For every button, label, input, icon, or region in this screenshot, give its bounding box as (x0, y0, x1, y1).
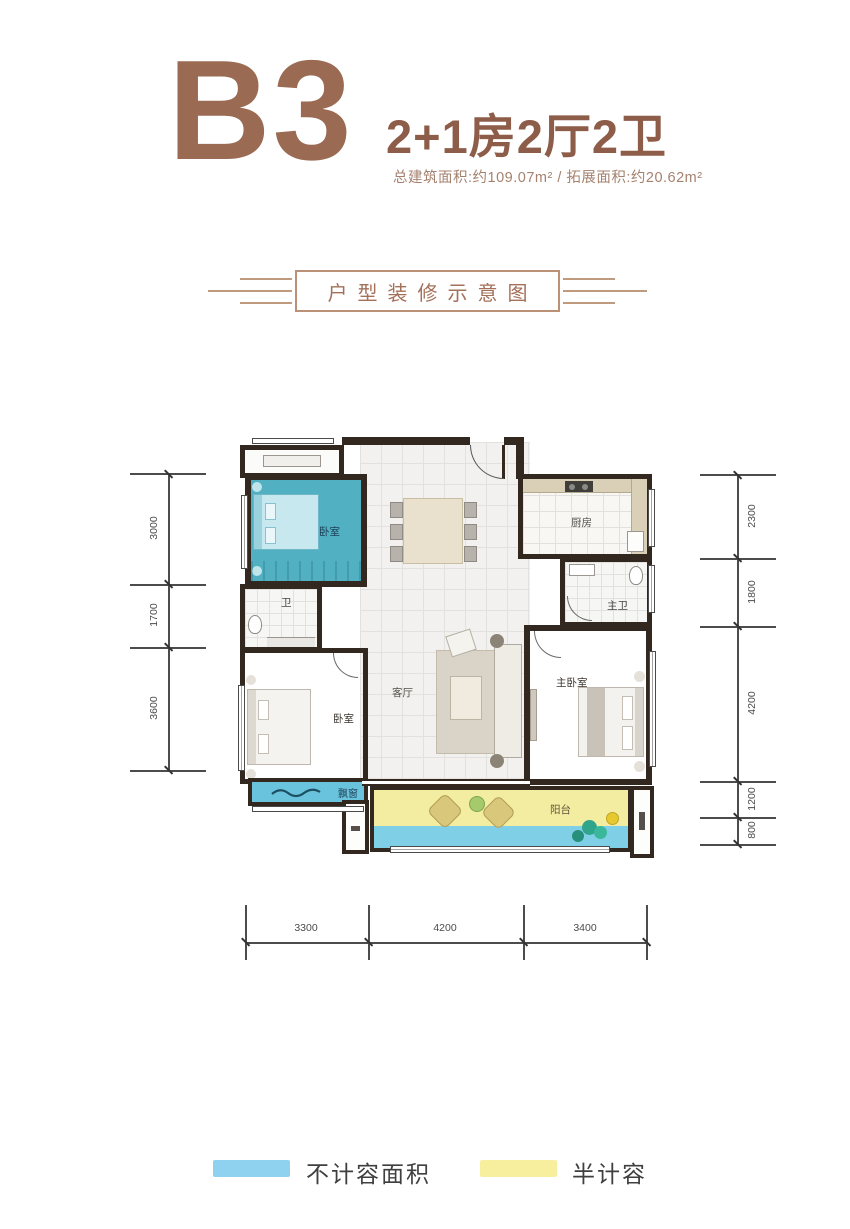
nightstand-icon (634, 671, 645, 682)
dim-right-1: 1800 (746, 571, 758, 613)
banner-deco-left (240, 278, 292, 280)
dim-left-2: 3600 (148, 687, 160, 729)
wall-entry-column (516, 437, 524, 479)
legend-label-blue: 不计容面积 (306, 1155, 431, 1189)
dim-right-4: 800 (746, 809, 758, 851)
dim-bottom-2: 3400 (564, 922, 606, 934)
dining-chair-icon (390, 524, 403, 540)
tv-bench-icon (530, 689, 537, 741)
bay-window-label: 飘窗 (338, 785, 358, 800)
banner-deco-left-bot (240, 302, 292, 304)
kitchen-label: 厨房 (571, 515, 592, 530)
bathroom-label: 卫 (281, 595, 292, 610)
ac-platform (630, 786, 654, 858)
bedroom-top: 卧室 (245, 474, 367, 587)
balcony-slider (362, 779, 530, 786)
pipe-icon (639, 812, 645, 830)
coffee-table-icon (450, 676, 482, 720)
dimension-right: 2300 1800 4200 1200 800 (700, 474, 776, 846)
master-bedroom: 主卧室 (524, 625, 652, 785)
dining-chair-icon (390, 502, 403, 518)
sofa-armrest-icon (490, 634, 504, 648)
living-room-label: 客厅 (392, 685, 413, 700)
dim-bottom-1: 4200 (424, 922, 466, 934)
shaft-mark (351, 826, 360, 831)
cushion-icon (427, 793, 464, 830)
dimension-left: 3000 1700 3600 (130, 473, 206, 771)
floorplan-page: B3 2+1房2厅2卫 总建筑面积:约109.07m² / 拓展面积:约20.6… (0, 0, 850, 1229)
fridge-icon (627, 531, 644, 552)
dining-chair-icon (464, 546, 477, 562)
master-bathroom-door-arc (567, 596, 592, 621)
banner-deco-right-mid (563, 290, 647, 292)
kitchen: 厨房 (518, 474, 652, 559)
dim-left-1: 1700 (148, 594, 160, 636)
window-balcony (390, 846, 610, 853)
master-bedroom-door-arc (534, 631, 561, 658)
nightstand-icon (252, 482, 262, 492)
sink-icon (569, 564, 595, 576)
master-bedroom-label: 主卧室 (556, 675, 588, 690)
layout-type: 2+1房2厅2卫 (386, 98, 667, 167)
dining-table-icon (403, 498, 463, 564)
balcony: 阳台 (370, 786, 632, 852)
master-bathroom-label: 主卫 (607, 598, 628, 613)
plant-icon (594, 826, 607, 839)
banner: 户型装修示意图 (295, 270, 560, 312)
dining-chair-icon (464, 524, 477, 540)
master-bathroom: 主卫 (560, 557, 652, 627)
toilet-icon (248, 615, 262, 634)
legend-swatch-yellow (480, 1160, 557, 1177)
dim-left-0: 3000 (148, 507, 160, 549)
teal-floor-stripes (251, 561, 361, 581)
balcony-label: 阳台 (550, 802, 571, 817)
window-top-closet (252, 438, 334, 444)
wardrobe-icon (263, 455, 321, 467)
nightstand-icon (634, 761, 645, 772)
bed-icon (578, 687, 644, 757)
window-bedroom-top (241, 495, 248, 569)
plant-icon (469, 796, 485, 812)
bed-icon (253, 494, 319, 550)
banner-title: 户型装修示意图 (318, 277, 538, 306)
banner-deco-right (563, 278, 615, 280)
window-master-bedroom (649, 651, 656, 767)
living-room: 客厅 (360, 442, 530, 786)
dining-chair-icon (464, 502, 477, 518)
nightstand-icon (246, 675, 256, 685)
floor-plan: 客厅 卧室 卫 (240, 437, 660, 862)
lemon-icon (606, 812, 619, 825)
wall-top-left (342, 437, 470, 445)
bedroom-left: 卧室 (240, 648, 368, 784)
dining-chair-icon (390, 546, 403, 562)
dim-bottom-0: 3300 (285, 922, 327, 934)
bathroom: 卫 (240, 584, 322, 652)
dim-right-2: 4200 (746, 682, 758, 724)
window-kitchen (648, 489, 655, 547)
window-bay-sill (252, 806, 364, 812)
dimension-bottom: 3300 4200 3400 (245, 905, 648, 960)
bedroom-left-label: 卧室 (333, 711, 354, 726)
corridor (523, 559, 565, 625)
window-master-bath (648, 565, 655, 613)
unit-title: B3 (168, 36, 354, 185)
window-bedroom-left (238, 685, 245, 771)
legend-swatch-blue (213, 1160, 290, 1177)
plant-icon (572, 830, 584, 842)
wave-decor-icon (270, 785, 330, 799)
legend-label-yellow: 半计容 (572, 1155, 647, 1189)
bedroom-left-door-arc (333, 653, 358, 678)
dim-right-0: 2300 (746, 495, 758, 537)
area-info: 总建筑面积:约109.07m² / 拓展面积:约20.62m² (393, 166, 703, 187)
bedroom-top-label: 卧室 (319, 524, 340, 539)
banner-deco-right-bot (563, 302, 615, 304)
cushion-icon (481, 795, 516, 830)
vanity-icon (267, 637, 315, 647)
bed-icon (247, 689, 311, 765)
stove-icon (565, 481, 593, 492)
sofa-icon (494, 644, 522, 758)
banner-deco-left-mid (208, 290, 292, 292)
toilet-icon (629, 566, 643, 585)
sofa-armrest-icon (490, 754, 504, 768)
